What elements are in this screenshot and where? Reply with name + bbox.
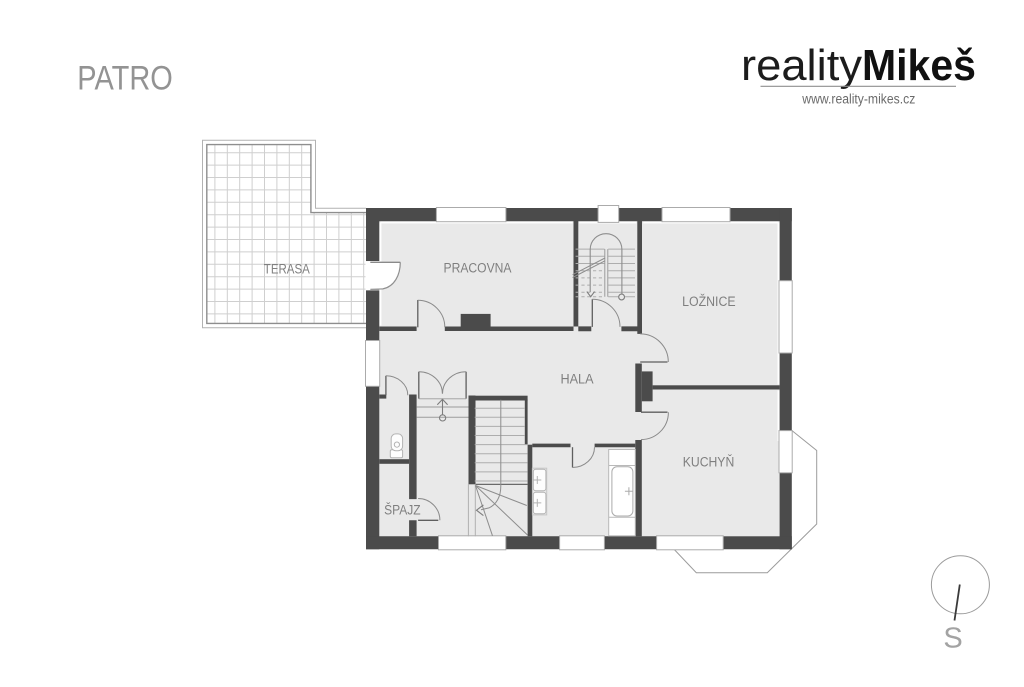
svg-text:KUCHYŇ: KUCHYŇ [683,454,735,469]
svg-text:reality: reality [741,41,862,90]
svg-text:ŠPAJZ: ŠPAJZ [384,502,421,517]
svg-text:PATRO: PATRO [77,60,173,98]
svg-text:TERASA: TERASA [264,261,310,276]
svg-text:HALA: HALA [561,371,594,386]
svg-text:PRACOVNA: PRACOVNA [444,260,512,275]
svg-text:S: S [943,623,962,655]
svg-text:LOŽNICE: LOŽNICE [682,294,736,309]
svg-text:www.reality-mikes.cz: www.reality-mikes.cz [801,92,915,107]
svg-text:Mikeš: Mikeš [862,41,976,90]
